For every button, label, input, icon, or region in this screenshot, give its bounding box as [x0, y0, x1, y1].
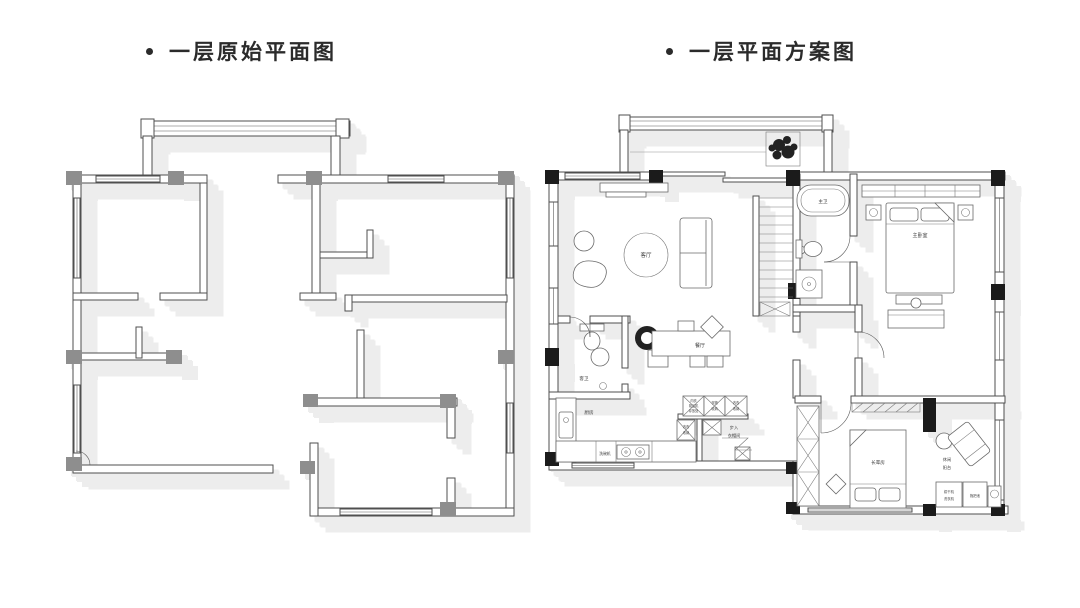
- toilet-tank: [580, 324, 604, 331]
- label-cab1-3: 存放处: [689, 408, 699, 413]
- walkin-closet: [703, 420, 752, 460]
- column: [991, 170, 1005, 186]
- dining-table: [652, 331, 730, 356]
- label-washer: 洗衣机: [944, 496, 955, 501]
- column: [66, 171, 82, 185]
- column: [440, 394, 456, 408]
- label-living-room: 客厅: [640, 251, 652, 259]
- column: [300, 461, 315, 474]
- label-cab2-1: 衣物: [711, 400, 718, 405]
- kitchen: [556, 398, 696, 462]
- chair: [690, 356, 705, 367]
- wall-pier: [923, 398, 936, 432]
- column: [923, 504, 936, 516]
- column: [498, 171, 514, 185]
- toilet: [584, 332, 600, 350]
- column: [991, 284, 1005, 300]
- label-mop-pool: 拖把池: [970, 493, 981, 498]
- label-cab4-1: 内衣: [683, 424, 690, 429]
- pillow: [855, 488, 876, 501]
- washer-dryer: [936, 482, 962, 507]
- tv: [606, 192, 646, 197]
- label-elder-room: 长辈房: [871, 459, 885, 466]
- right-plan: 客厅 餐厅 客卫 厨房 洗碗机 主卫 主卧室 长辈房 步入 衣帽间 休闲 阳台 …: [545, 115, 1008, 516]
- label-master-bath: 主卫: [818, 198, 828, 204]
- label-cab2-2: 收纳: [711, 406, 717, 411]
- sink: [559, 412, 573, 438]
- desk: [888, 310, 944, 328]
- stool: [911, 298, 921, 308]
- column: [440, 502, 456, 516]
- floorplans-svg: 客厅 餐厅 客卫 厨房 洗碗机 主卫 主卧室 长辈房 步入 衣帽间 休闲 阳台 …: [0, 0, 1080, 608]
- label-walkin-closet-1: 步入: [730, 425, 739, 431]
- toilet-tank: [796, 240, 802, 258]
- master-bedroom: [858, 185, 980, 358]
- chair: [826, 474, 846, 494]
- column: [545, 170, 559, 184]
- stairs: [759, 198, 793, 316]
- column: [168, 171, 184, 185]
- mop-sink: [988, 486, 1001, 507]
- door-arc: [858, 332, 884, 358]
- label-dryer: 烘干机: [944, 489, 955, 494]
- lounge-chair: [947, 421, 991, 467]
- chair: [678, 321, 694, 331]
- closet-hatch: [852, 403, 920, 412]
- label-dining-room: 餐厅: [695, 342, 705, 349]
- leisure-balcony: [936, 421, 1001, 507]
- guest-bath: [570, 317, 609, 390]
- pouf: [574, 231, 594, 251]
- label-balcony-1: 休闲: [943, 456, 951, 463]
- column: [498, 350, 514, 364]
- label-dishwasher: 洗碗机: [599, 451, 611, 456]
- chair: [707, 356, 723, 367]
- pillow: [879, 488, 900, 501]
- label-kitchen: 厨房: [584, 409, 594, 416]
- left-plan-walls: [66, 119, 514, 516]
- label-cab3-2: 收纳: [733, 406, 739, 411]
- column: [306, 171, 322, 185]
- door-arc: [824, 236, 850, 262]
- tv-console: [600, 183, 668, 192]
- label-balcony-2: 阳台: [943, 464, 951, 471]
- dining-area: [635, 316, 730, 367]
- column: [166, 350, 182, 364]
- column: [303, 394, 318, 407]
- label-master-bedroom: 主卧室: [912, 232, 927, 239]
- vanity: [796, 270, 822, 298]
- label-walkin-closet-2: 衣帽间: [728, 432, 741, 439]
- elder-room: [797, 403, 920, 508]
- basin: [591, 348, 609, 366]
- label-cab3-1: 内衣: [733, 400, 740, 405]
- toilet: [804, 242, 822, 257]
- floor-drain: [600, 383, 607, 390]
- column: [545, 348, 559, 366]
- column: [786, 170, 800, 186]
- floorplan-page: 一层原始平面图 一层平面方案图: [0, 0, 1080, 608]
- pillow: [890, 208, 918, 221]
- column: [66, 350, 82, 364]
- label-cab4-2: 收纳: [683, 430, 689, 435]
- living-room: [573, 183, 712, 288]
- armchair: [573, 261, 606, 288]
- label-cab1-1: 内衣: [690, 398, 697, 403]
- plant-box: [766, 132, 800, 166]
- label-guest-bath: 客卫: [579, 375, 589, 382]
- nightstand: [866, 205, 881, 220]
- door-arc: [821, 403, 851, 433]
- column: [66, 457, 82, 471]
- left-plan: [66, 119, 514, 516]
- label-cab1-2: 吸尘机: [689, 403, 699, 408]
- nightstand: [958, 205, 973, 220]
